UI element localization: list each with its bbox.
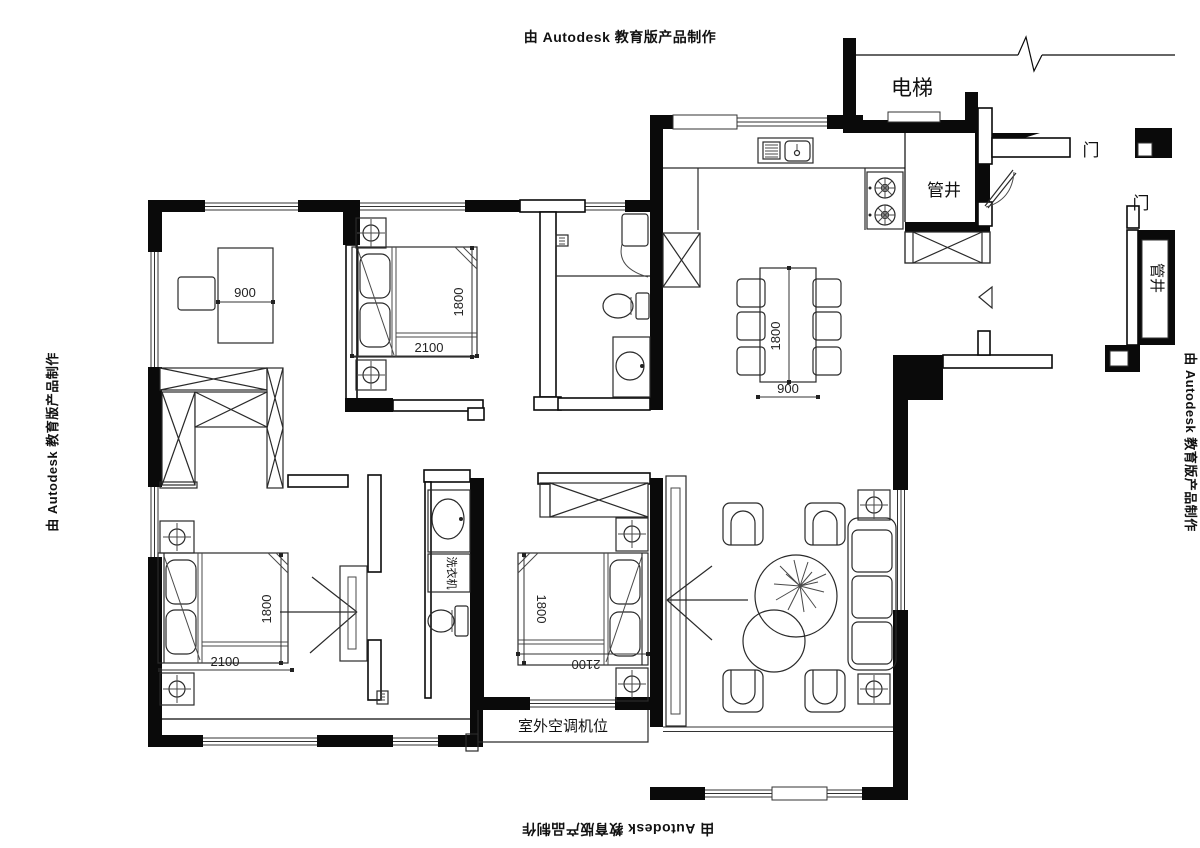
wall xyxy=(650,120,663,410)
side-table xyxy=(858,490,890,520)
svg-text:900: 900 xyxy=(777,381,799,396)
svg-text:1800: 1800 xyxy=(534,595,549,624)
door-frame xyxy=(978,108,992,164)
dim-bed-mid-depth: 1800 xyxy=(522,553,549,665)
kitchen xyxy=(650,120,905,410)
dining-chair xyxy=(737,347,765,375)
credit-right: 由 Autodesk 教育版产品制作 xyxy=(1183,352,1198,531)
pipe-shaft-right: 门 管井 xyxy=(1105,128,1175,372)
label-door-entry: 门 xyxy=(1083,141,1100,160)
toilet xyxy=(603,293,649,319)
pillow xyxy=(610,612,640,656)
balcony-door xyxy=(772,787,827,800)
dim-study-desk: 900 xyxy=(216,285,275,304)
tv xyxy=(348,577,356,649)
nightstand xyxy=(160,521,194,553)
window xyxy=(585,203,625,210)
toilet xyxy=(428,606,468,636)
shoe-cabinet xyxy=(905,232,990,263)
label-elevator: 电梯 xyxy=(891,77,933,100)
dining-chair xyxy=(737,279,765,307)
dining-chair xyxy=(813,312,841,340)
windows xyxy=(151,203,905,800)
dining-chair xyxy=(813,347,841,375)
dim-dining-width: 900 xyxy=(756,381,820,399)
armchair xyxy=(805,503,845,545)
washing-machine: 洗衣机 xyxy=(428,554,470,592)
armchair xyxy=(723,503,763,545)
tv xyxy=(671,488,680,714)
elevator-hall: 电梯 xyxy=(843,37,1175,133)
pillow xyxy=(360,303,390,347)
dim-bed-mid-width: 2100 xyxy=(516,652,650,672)
window-opening xyxy=(673,115,737,129)
label-washing-machine: 洗衣机 xyxy=(445,557,459,590)
svg-text:2100: 2100 xyxy=(211,654,240,669)
nightstand xyxy=(356,360,386,390)
kitchen-sink xyxy=(758,138,813,163)
door-handle xyxy=(556,235,568,246)
wall xyxy=(965,92,978,122)
exterior-walls xyxy=(148,200,908,800)
label-pipe-shaft-right: 管井 xyxy=(1148,263,1165,293)
shower-door xyxy=(621,244,648,277)
floor-plan-canvas: 由 Autodesk 教育版产品制作 由 Autodesk 教育版产品制作 由 … xyxy=(0,0,1200,848)
svg-text:1800: 1800 xyxy=(259,595,274,624)
nightstand xyxy=(356,218,386,248)
wardrobe xyxy=(540,483,648,517)
svg-text:1800: 1800 xyxy=(451,288,466,317)
pillow xyxy=(166,610,196,654)
credit-top: 由 Autodesk 教育版产品制作 xyxy=(524,29,717,45)
bedroom-left: 1800 2100 xyxy=(158,521,388,705)
armchair xyxy=(805,670,845,712)
svg-text:2100: 2100 xyxy=(572,657,601,672)
dim-bed-left-depth: 1800 xyxy=(259,553,283,665)
entry-arrow-icon xyxy=(979,287,992,308)
window xyxy=(898,490,905,610)
bathroom-2: 洗衣机 xyxy=(428,490,470,636)
dining-chair xyxy=(813,279,841,307)
svg-text:2100: 2100 xyxy=(415,340,444,355)
armchair xyxy=(723,670,763,712)
label-door-right: 门 xyxy=(1133,194,1150,213)
chair xyxy=(178,277,215,310)
dim-dining-length: 1800 xyxy=(768,266,791,384)
elevator-door xyxy=(888,112,940,122)
svg-text:1800: 1800 xyxy=(768,322,783,351)
washbasin xyxy=(613,337,650,397)
label-outdoor-ac: 室外空调机位 xyxy=(518,718,608,735)
bedroom-mid: 1800 2100 xyxy=(516,483,650,701)
window xyxy=(350,203,465,210)
bathroom-top xyxy=(556,214,650,397)
view-arrow xyxy=(667,566,748,640)
sofa xyxy=(848,518,896,670)
credit-left: 由 Autodesk 教育版产品制作 xyxy=(45,352,60,531)
kitchen-counter xyxy=(663,168,905,230)
wardrobe xyxy=(160,368,283,488)
floor-plan-drawing: 由 Autodesk 教育版产品制作 由 Autodesk 教育版产品制作 由 … xyxy=(0,0,1200,848)
plant xyxy=(774,560,826,612)
pillow xyxy=(360,254,390,298)
window xyxy=(530,700,615,707)
entry: 门 xyxy=(901,108,1100,400)
dining: 1800 900 xyxy=(737,266,841,399)
pillow xyxy=(166,560,196,604)
nightstand xyxy=(616,518,648,551)
outdoor-ac-platform: 室外空调机位 xyxy=(466,710,648,751)
window xyxy=(151,487,158,557)
pillow xyxy=(610,560,640,604)
label-pipe-shaft-top: 管井 xyxy=(927,181,961,200)
view-arrow xyxy=(280,577,357,653)
break-line xyxy=(853,37,1175,71)
living-room xyxy=(666,476,896,726)
window xyxy=(737,118,827,126)
wall-stub xyxy=(943,355,1052,368)
dim-bed-top-width: 2100 xyxy=(350,340,479,358)
north-wall xyxy=(650,115,863,129)
washbasin xyxy=(428,490,470,552)
nightstand xyxy=(160,673,194,705)
tv-panel xyxy=(340,566,367,661)
balcony-line xyxy=(663,727,893,732)
window xyxy=(205,203,298,210)
credit-bottom: 由 Autodesk 教育版产品制作 xyxy=(522,821,715,837)
wall-stub xyxy=(992,138,1070,157)
window xyxy=(151,252,158,367)
svg-text:900: 900 xyxy=(234,285,256,300)
shower-fixture xyxy=(622,214,648,246)
gas-stove xyxy=(867,172,903,229)
dining-chair xyxy=(737,312,765,340)
fridge-cabinet xyxy=(663,233,700,287)
coffee-table-small xyxy=(743,610,805,672)
nightstand xyxy=(616,668,648,701)
bedroom-top: 2100 1800 xyxy=(350,218,479,390)
wall-stub xyxy=(978,331,990,355)
window xyxy=(393,738,438,745)
study: 900 xyxy=(160,248,283,488)
side-table xyxy=(858,674,890,704)
window xyxy=(203,738,317,745)
